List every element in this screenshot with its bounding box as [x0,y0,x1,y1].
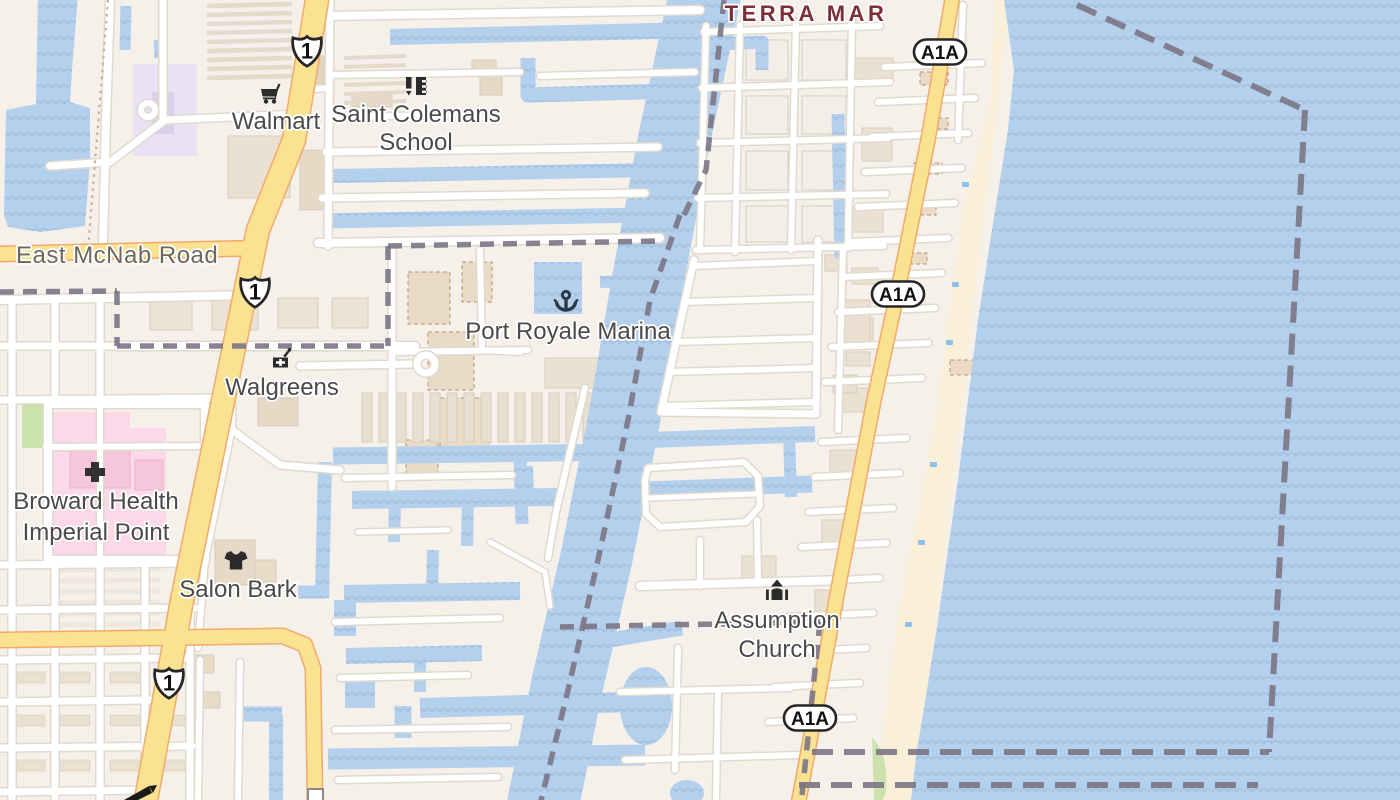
svg-text:School: School [379,129,452,156]
svg-text:Imperial Point: Imperial Point [23,519,170,546]
svg-text:1: 1 [301,39,313,64]
svg-text:Saint Colemans: Saint Colemans [331,101,500,128]
svg-text:A1A: A1A [879,285,917,306]
svg-text:Port Royale Marina: Port Royale Marina [465,318,671,345]
svg-text:1: 1 [249,280,261,305]
svg-text:East McNab Road: East McNab Road [16,242,218,269]
svg-text:Assumption: Assumption [714,607,839,634]
svg-text:1: 1 [163,671,175,696]
svg-text:A1A: A1A [921,43,959,64]
svg-text:Salon Bark: Salon Bark [179,576,297,603]
svg-text:A1A: A1A [791,709,829,730]
svg-text:Walmart: Walmart [232,108,321,135]
svg-text:Broward Health: Broward Health [13,488,178,515]
svg-text:Walgreens: Walgreens [225,374,339,401]
svg-text:Church: Church [738,636,815,663]
svg-text:TERRA MAR: TERRA MAR [725,1,888,26]
